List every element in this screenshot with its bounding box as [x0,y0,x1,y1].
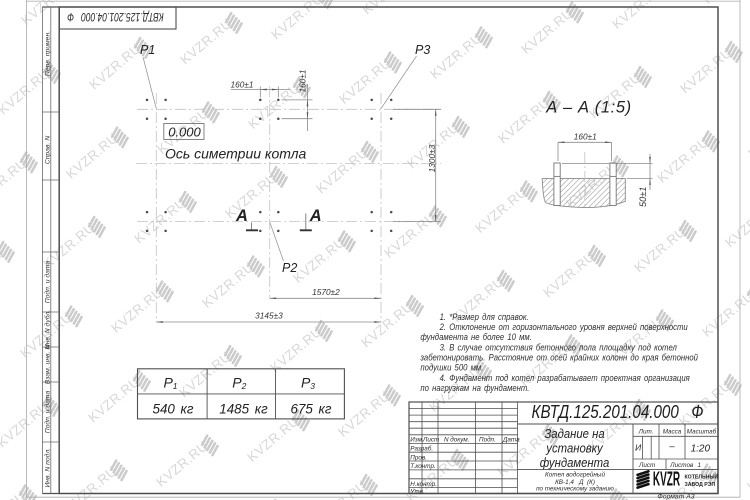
svg-text:Перв. примен.: Перв. примен. [45,31,52,76]
svg-text:КВТД.125.201.04.000 Ф: КВТД.125.201.04.000 Ф [532,401,704,422]
svg-text:KVZR.RU: KVZR.RU [609,0,667,32]
svg-text:N докум.: N докум. [444,436,469,444]
svg-text:Справ. N: Справ. N [45,136,52,165]
svg-text:Листов: Листов [669,462,694,469]
svg-text:КОТЕЛЬНЫЙ: КОТЕЛЬНЫЙ [685,472,719,480]
svg-text:160±1: 160±1 [230,80,253,90]
svg-text:Подп. и дата: Подп. и дата [44,261,52,304]
svg-text:Пров.: Пров. [410,454,427,461]
svg-text:фундамента не более 10 мм.: фундамента не более 10 мм. [420,331,531,342]
svg-text:Р1: Р1 [140,43,155,57]
svg-text:Р2: Р2 [232,375,246,392]
svg-text:0.000: 0.000 [168,125,201,140]
svg-text:Формат А3: Формат А3 [657,493,694,500]
svg-text:KVZR.RU: KVZR.RU [359,0,417,17]
svg-text:по техническому заданию: по техническому заданию [536,484,614,492]
svg-text:Инв. N дубл.: Инв. N дубл. [44,310,52,349]
svg-text:установку: установку [545,441,603,456]
svg-text:Т.контр.: Т.контр. [410,463,435,470]
svg-text:160±1: 160±1 [297,69,307,92]
svg-text:4. Фундамент под котел разраба: 4. Фундамент под котел разрабатывает про… [440,372,691,383]
svg-text:Подп.: Подп. [479,436,496,444]
svg-text:675 кг: 675 кг [291,402,332,417]
svg-text:Задание на: Задание на [544,426,605,441]
svg-text:50±1: 50±1 [638,187,648,207]
svg-text:Лист: Лист [638,462,655,469]
svg-text:1570±2: 1570±2 [312,287,340,297]
svg-text:1: 1 [698,462,702,469]
svg-text:KVZR.RU: KVZR.RU [744,442,750,494]
svg-text:1:20: 1:20 [691,444,711,455]
svg-text:ЗАВОД РЭП: ЗАВОД РЭП [685,482,716,488]
svg-text:А: А [235,207,248,225]
svg-text:Изм.: Изм. [410,437,423,444]
svg-text:540 кг: 540 кг [153,402,194,417]
svg-text:3145±3: 3145±3 [255,311,283,321]
svg-text:160±1: 160±1 [574,132,597,142]
svg-text:KVZR: KVZR [653,469,681,491]
svg-text:Масса: Масса [663,428,682,435]
svg-text:Котел водогрейный: Котел водогрейный [545,470,605,478]
svg-text:Ось симетрии котла: Ось симетрии котла [165,146,307,162]
svg-text:Утв.: Утв. [409,488,424,495]
svg-text:KVZR.RU: KVZR.RU [312,478,370,500]
svg-text:KVZR.RU: KVZR.RU [699,288,750,340]
svg-text:Лит.: Лит. [638,428,654,435]
svg-text:КВТД.125.201.04.000 Ф: КВТД.125.201.04.000 Ф [67,9,163,22]
svg-text:Р2: Р2 [282,261,297,275]
svg-text:Р1: Р1 [163,375,177,392]
svg-text:3. В случае отсутствия бетонно: 3. В случае отсутствия бетонного пола пл… [440,342,677,353]
svg-text:по нагрузкам на фундамент.: по нагрузкам на фундамент. [420,382,529,393]
svg-text:1300±3: 1300±3 [427,144,437,172]
svg-text:–: – [668,441,675,452]
svg-text:1. *Размер для справок.: 1. *Размер для справок. [440,311,529,322]
svg-text:1485 кг: 1485 кг [219,402,268,417]
svg-text:Лист: Лист [422,437,439,444]
svg-text:фундамента: фундамента [540,455,610,470]
svg-text:Дата: Дата [502,437,520,444]
svg-text:Подп. и дата: Подп. и дата [44,391,52,434]
svg-text:Взам. инв. N: Взам. инв. N [45,345,52,385]
svg-text:А – А (1:5): А – А (1:5) [545,99,631,117]
svg-text:Масштаб: Масштаб [687,427,717,435]
svg-text:И: И [635,442,642,452]
svg-text:Разраб.: Разраб. [410,445,433,453]
svg-text:KVZR.RU: KVZR.RU [722,199,750,251]
svg-text:Инв. N подл.: Инв. N подл. [44,448,52,488]
svg-text:подушки 500 мм.: подушки 500 мм. [420,362,483,373]
svg-text:KVZR.RU: KVZR.RU [745,109,750,161]
svg-text:Р3: Р3 [415,43,430,57]
svg-text:Р3: Р3 [301,375,315,392]
svg-text:А: А [309,207,322,225]
svg-text:Н.контр.: Н.контр. [410,481,437,488]
